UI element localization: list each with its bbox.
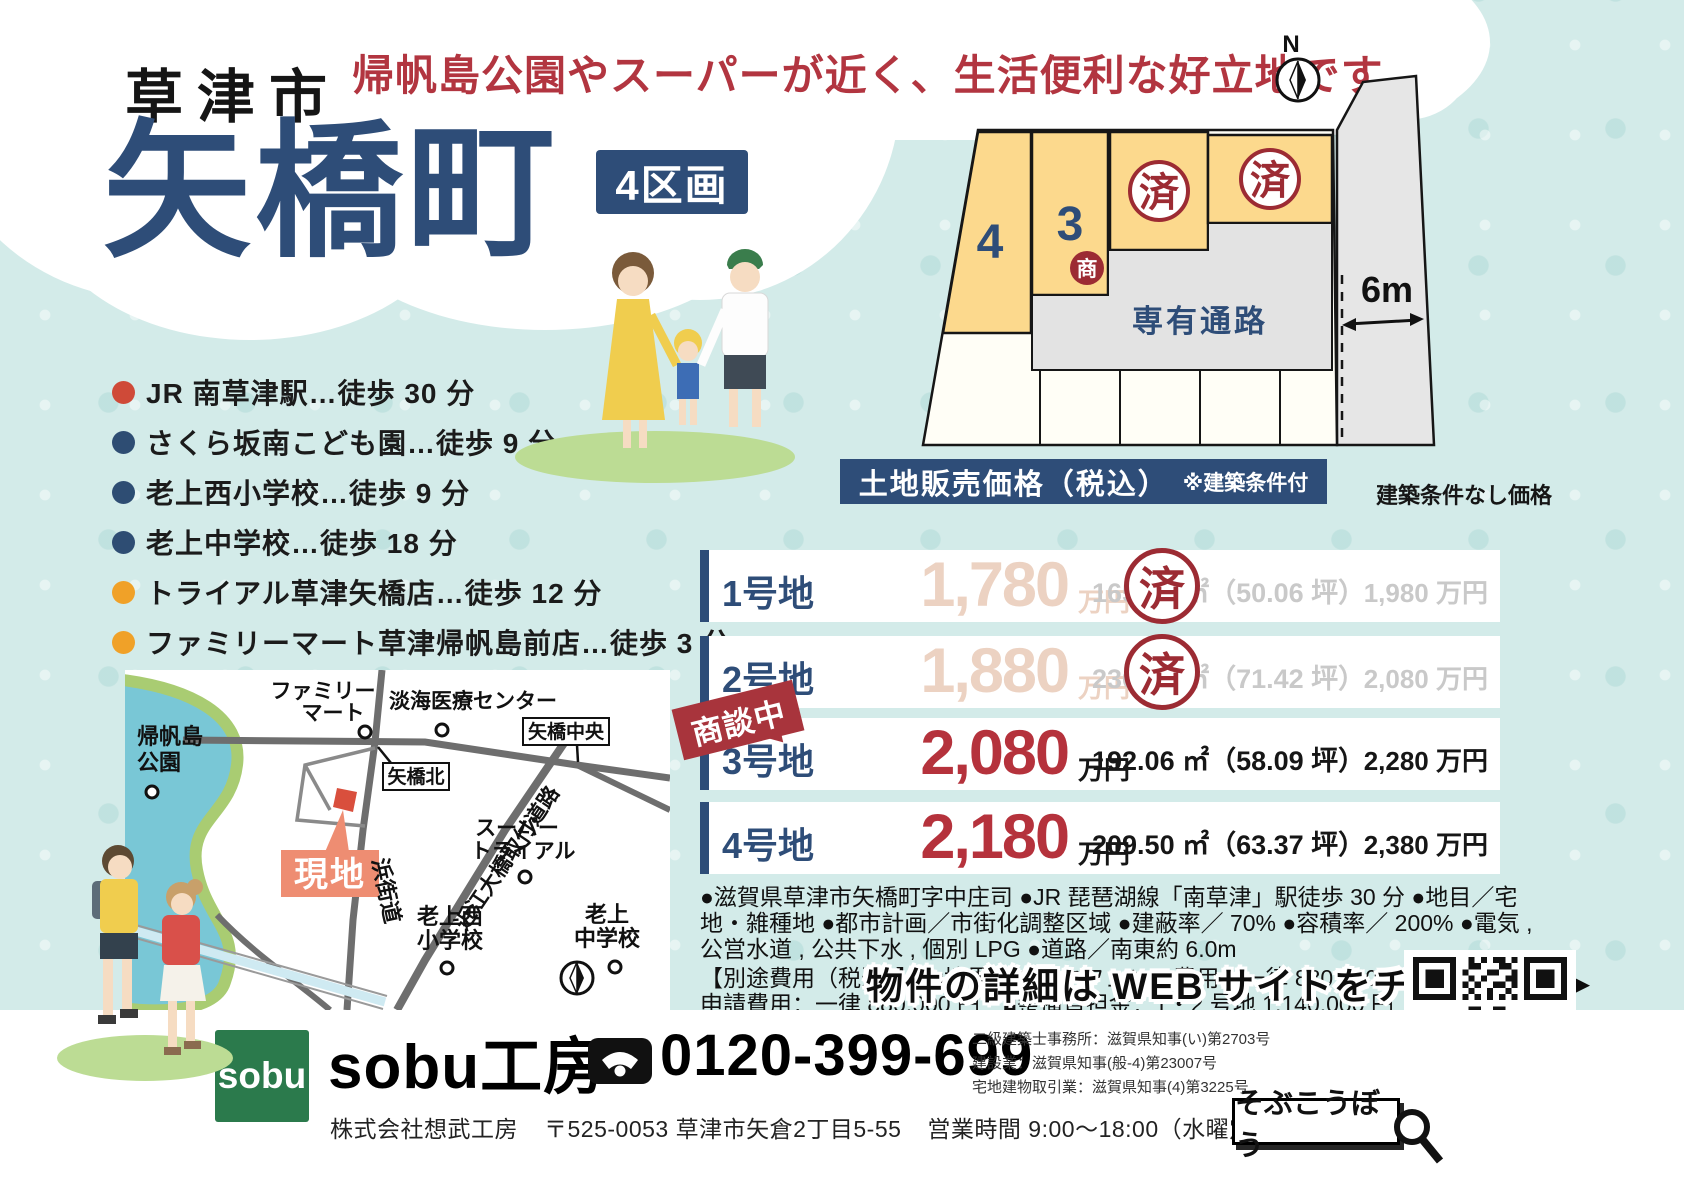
- road-width-label: 6m: [1361, 269, 1413, 310]
- bullet-icon: [112, 431, 135, 454]
- access-text: さくら坂南こども園…徒歩 9 分: [146, 422, 557, 462]
- freedial-icon: [588, 1038, 652, 1084]
- site-plan: N 4 3 商 済 済 専有通路 6m: [890, 30, 1670, 460]
- map-label-familymart: ファミリー: [271, 680, 376, 703]
- map-label-yabase-kita: 矢橋北: [387, 765, 444, 788]
- row-accent-bar: [700, 802, 709, 874]
- company-info: 株式会社想武工房 〒525-0053 草津市矢倉2丁目5-55 営業時間 9:0…: [330, 1110, 1300, 1144]
- map-marker: [441, 962, 453, 974]
- no-condition-price: 2,080 万円: [1336, 659, 1488, 696]
- title-town: 矢橋町: [103, 112, 559, 275]
- map-marker: [519, 871, 531, 883]
- map-label-park: 帰帆島: [137, 724, 203, 749]
- bullet-icon: [112, 531, 135, 554]
- sold-stamp: 済: [1124, 548, 1200, 624]
- price-row-lot2: 2号地 1,880 万円 236.13 ㎡（71.42 坪） 2,080 万円 …: [700, 636, 1500, 708]
- license-list: 二級建築士事務所：滋賀県知事(い)第2703号 建設業：滋賀県知事(般-4)第2…: [972, 1028, 1270, 1100]
- license-line: 建設業：滋賀県知事(般-4)第23007号: [972, 1052, 1270, 1076]
- lot-price: 2,080: [820, 718, 1068, 788]
- access-text: 老上西小学校…徒歩 9 分: [146, 472, 470, 512]
- lot-price: 1,780: [820, 550, 1068, 620]
- map-label-hospital: 淡海医療センター: [389, 689, 557, 713]
- flyer-page: 草津市 矢橋町 4区画 帰帆島公園やスーパーが近く、生活便利な好立地です N 4…: [0, 0, 1684, 1191]
- map-marker: [609, 961, 621, 973]
- access-item: トライアル草津矢橋店…徒歩 12 分: [112, 572, 731, 612]
- sold-stamp-label: 済: [1139, 171, 1180, 215]
- site-label: 現地: [294, 856, 366, 894]
- lot-area: 192.06 ㎡（58.09 坪）: [1092, 739, 1365, 778]
- lot-3-label: 3: [1057, 198, 1084, 251]
- row-accent-bar: [700, 636, 709, 708]
- footer: sobu sobu工房 0120-399-699 株式会社想武工房 〒525-0…: [0, 1010, 1684, 1191]
- company-brand: sobu工房: [328, 1016, 606, 1106]
- map-label-yabase-chuo: 矢橋中央: [528, 720, 605, 743]
- bullet-icon: [112, 631, 135, 654]
- lot-4-label: 4: [977, 216, 1004, 269]
- company-name: 株式会社想武工房: [330, 1110, 518, 1144]
- lot-name: 1号地: [722, 565, 814, 617]
- passage-label: 専有通路: [1132, 304, 1268, 339]
- svg-text:中学校: 中学校: [574, 926, 641, 951]
- access-text: トライアル草津矢橋店…徒歩 12 分: [146, 572, 602, 612]
- price-row-lot1: 1号地 1,780 万円 165.49 ㎡（50.06 坪） 1,980 万円 …: [700, 550, 1500, 622]
- map-marker: [436, 724, 448, 736]
- compass-north-label: N: [1282, 31, 1299, 58]
- magnifier-icon: [1388, 1105, 1448, 1167]
- access-text: JR 南草津駅…徒歩 30 分: [146, 372, 475, 412]
- map-marker: [359, 726, 371, 738]
- price-header-note: ※建築条件付: [1183, 467, 1308, 497]
- company-address: 〒525-0053 草津市矢倉2丁目5-55: [544, 1110, 901, 1144]
- search-keyword-box: そぶこうぼう: [1232, 1098, 1400, 1145]
- road-strip: [1337, 76, 1434, 445]
- lot-price: 1,880: [820, 636, 1068, 706]
- bullet-icon: [112, 581, 135, 604]
- price-header-title: 土地販売価格（税込）: [859, 461, 1169, 503]
- map-label-junior: 老上: [584, 902, 629, 927]
- price-table-header: 土地販売価格（税込） ※建築条件付: [840, 459, 1327, 504]
- row-accent-bar: [700, 550, 709, 622]
- sold-stamp-label: 済: [1250, 159, 1291, 203]
- family-illustration: [505, 215, 805, 485]
- svg-text:小学校: 小学校: [417, 928, 484, 953]
- no-condition-price: 2,380 万円: [1336, 825, 1488, 862]
- lot-price: 2,180: [820, 802, 1068, 872]
- access-item: ファミリーマート草津帰帆島前店…徒歩 3 分: [112, 622, 731, 662]
- lot-area: 209.50 ㎡（63.37 坪）: [1092, 823, 1365, 862]
- no-condition-price-header: 建築条件なし価格: [1376, 478, 1552, 510]
- bullet-icon: [112, 381, 135, 404]
- lots-count-badge: 4区画: [596, 150, 748, 214]
- bullet-icon: [112, 481, 135, 504]
- sold-stamp: 済: [1124, 634, 1200, 710]
- license-line: 二級建築士事務所：滋賀県知事(い)第2703号: [972, 1028, 1270, 1052]
- no-condition-price: 2,280 万円: [1336, 741, 1488, 778]
- access-text: 老上中学校…徒歩 18 分: [146, 522, 458, 562]
- access-item: 老上中学校…徒歩 18 分: [112, 522, 731, 562]
- price-row-lot3: 3号地 2,080 万円 192.06 ㎡（58.09 坪） 2,280 万円: [700, 718, 1500, 790]
- lot-name: 4号地: [722, 817, 814, 869]
- price-row-lot4: 4号地 2,180 万円 209.50 ㎡（63.37 坪） 2,380 万円: [700, 802, 1500, 874]
- map-marker: [146, 786, 158, 798]
- no-condition-price: 1,980 万円: [1336, 573, 1488, 610]
- svg-text:公園: 公園: [137, 750, 181, 775]
- license-line: 宅地建物取引業：滋賀県知事(4)第3225号: [972, 1076, 1270, 1100]
- svg-text:マート: マート: [302, 702, 365, 725]
- access-text: ファミリーマート草津帰帆島前店…徒歩 3 分: [146, 622, 731, 662]
- walking-couple-illustration: [48, 815, 243, 1085]
- lot-3-sho-badge: 商: [1077, 257, 1098, 281]
